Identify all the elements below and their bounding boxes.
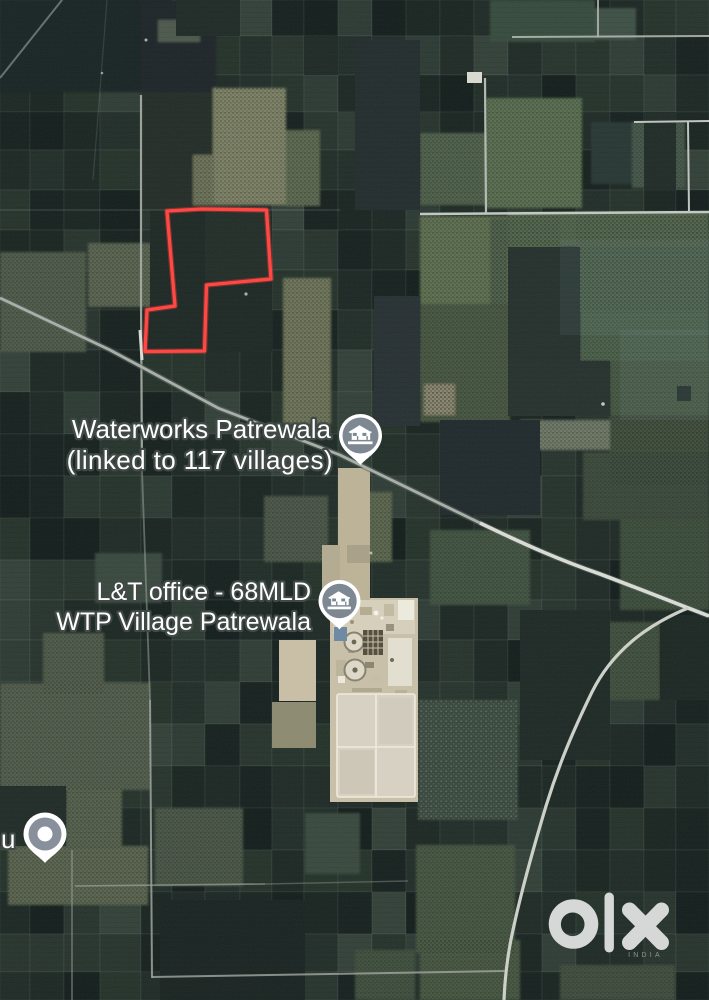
svg-text:Waterworks Patrewala: Waterworks Patrewala — [72, 414, 332, 444]
svg-text:(linked to 117 villages): (linked to 117 villages) — [67, 445, 333, 475]
svg-text:INDIA: INDIA — [628, 952, 663, 959]
svg-text:L&T office - 68MLD: L&T office - 68MLD — [97, 578, 311, 606]
svg-text:u: u — [1, 824, 15, 854]
svg-text:WTP Village Patrewala: WTP Village Patrewala — [56, 608, 311, 636]
